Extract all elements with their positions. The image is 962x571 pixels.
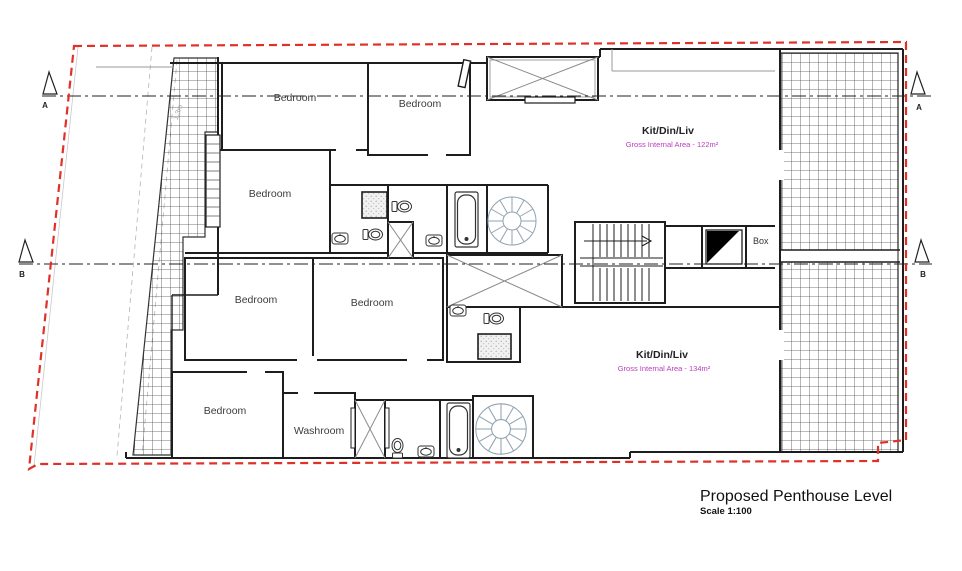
room-label-bedroom-3: Bedroom: [249, 188, 292, 200]
room-label-bedroom-4: Bedroom: [235, 294, 278, 306]
lift-bottom: [351, 400, 389, 458]
room-label-bedroom-1: Bedroom: [274, 92, 317, 104]
section-marker-a-left: [43, 72, 57, 94]
section-marker-b-left: [19, 240, 33, 262]
drawing-title: Proposed Penthouse Level: [700, 488, 892, 505]
room-label-box: Box: [753, 236, 769, 246]
room-label-washroom: Washroom: [294, 425, 345, 437]
void-middle: [447, 255, 562, 307]
bathtub-top: [455, 192, 478, 247]
terrace-right: [779, 53, 900, 452]
room-label-kitdinliv-1: Kit/Din/Liv: [642, 125, 694, 137]
bathtub-bottom: [447, 403, 470, 458]
title-block: Proposed Penthouse Level Scale 1:100: [700, 488, 892, 517]
duct-box: [702, 226, 746, 268]
toilet-1: [392, 201, 412, 212]
section-marker-a-right: [911, 72, 925, 94]
marker-text-b-right: B: [920, 270, 926, 279]
shower-bottom: [478, 334, 511, 359]
area-label-apt2: Gross Internal Area - 134m²: [618, 364, 711, 373]
marker-text-a-right: A: [916, 103, 922, 112]
railing-ladder: [206, 135, 220, 227]
sink-1: [332, 233, 348, 244]
sink-4: [418, 446, 434, 457]
toilet-3: [484, 313, 504, 324]
toilet-4: [392, 439, 403, 459]
section-marker-b-right: [915, 240, 929, 262]
sink-2: [426, 235, 442, 246]
marker-text-b-left: B: [19, 270, 25, 279]
floor-plan-drawing: Bedroom Bedroom Bedroom Bedroom Bedroom …: [0, 0, 962, 571]
room-label-bedroom-2: Bedroom: [399, 98, 442, 110]
sink-3: [450, 305, 466, 316]
room-label-bedroom-6: Bedroom: [204, 405, 247, 417]
spiral-stair-bottom: [476, 404, 526, 454]
shaft-small-center: [388, 222, 413, 258]
floor-plan-page: Bedroom Bedroom Bedroom Bedroom Bedroom …: [0, 0, 962, 571]
room-label-bedroom-5: Bedroom: [351, 297, 394, 309]
spiral-stair-top: [488, 197, 536, 245]
toilet-2: [363, 229, 383, 240]
drawing-scale: Scale 1:100: [700, 506, 752, 517]
area-label-apt1: Gross Internal Area - 122m²: [626, 140, 719, 149]
shower-top: [362, 192, 387, 218]
marker-text-a-left: A: [42, 101, 48, 110]
room-label-kitdinliv-2: Kit/Din/Liv: [636, 349, 688, 361]
staircase: [575, 222, 665, 303]
